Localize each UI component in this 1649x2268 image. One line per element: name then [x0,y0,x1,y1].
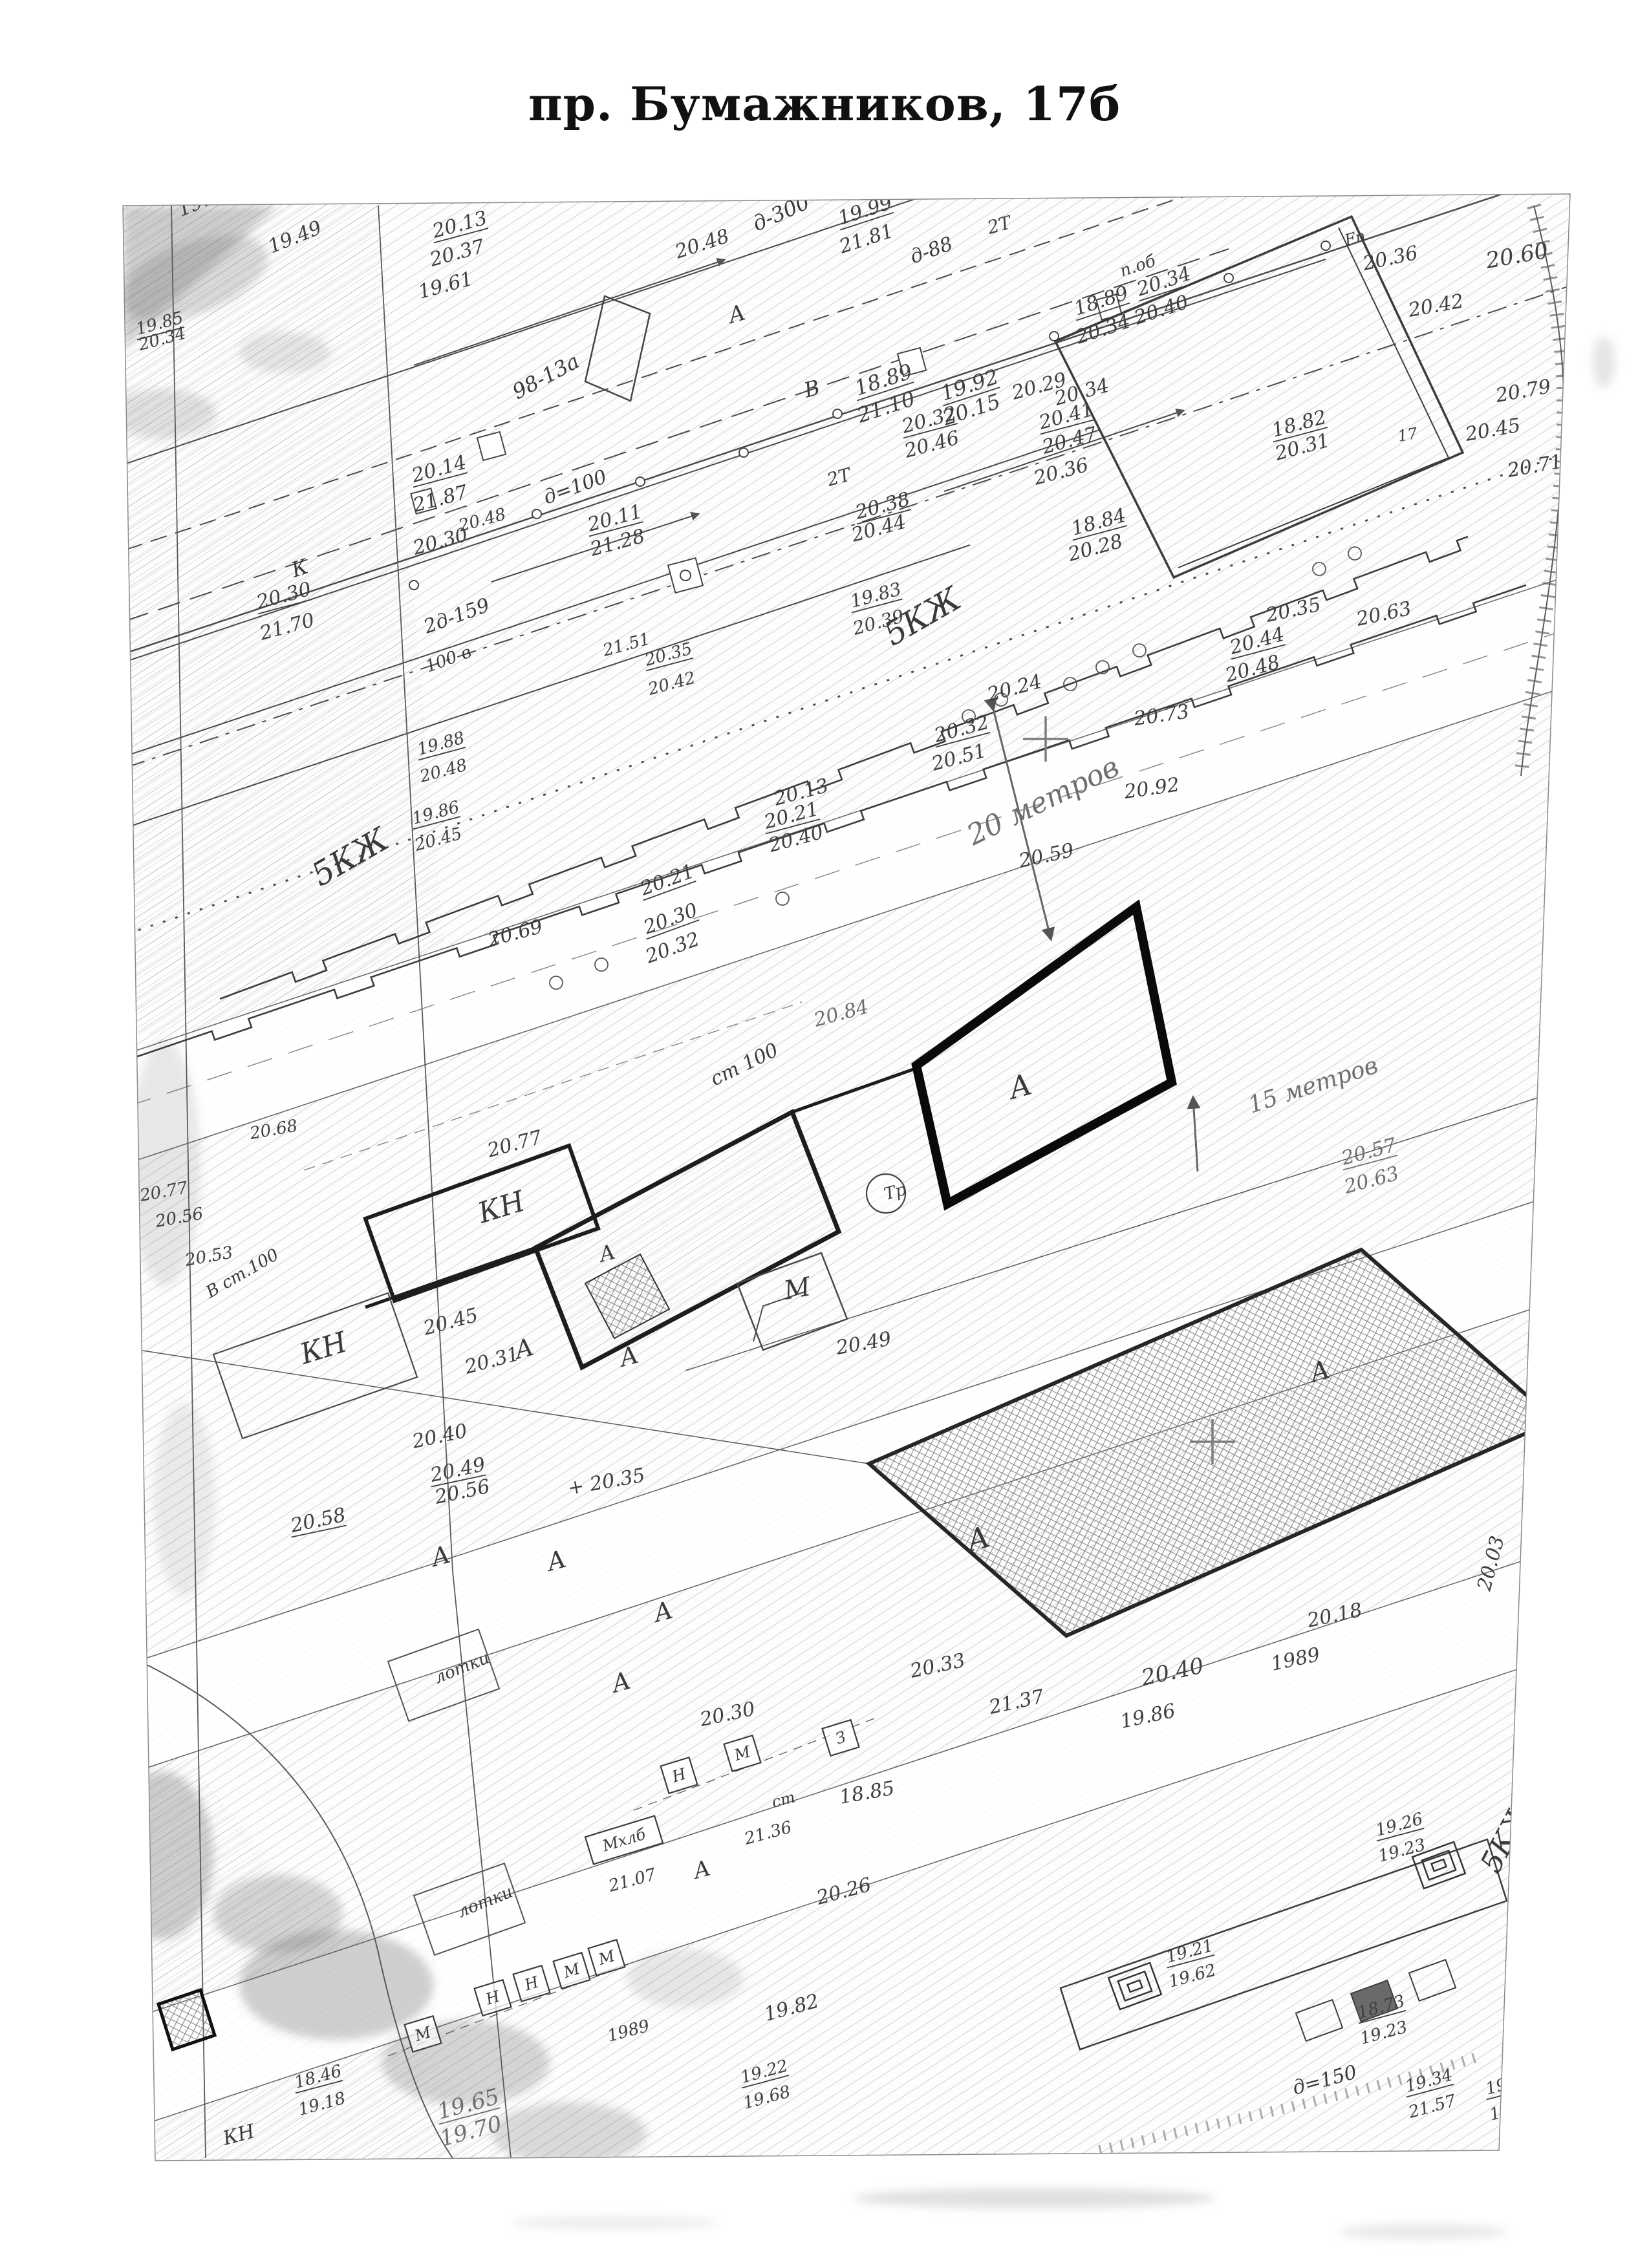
page-title: пр. Бумажников, 17б [0,76,1649,131]
site-plan-map: МННММНМЗМхлб 19.4319.4920.1320.3719.6119… [0,0,1649,2268]
scanned-plan-page: пр. Бумажников, 17б [0,0,1649,2268]
map-label: 17 [1396,424,1419,445]
